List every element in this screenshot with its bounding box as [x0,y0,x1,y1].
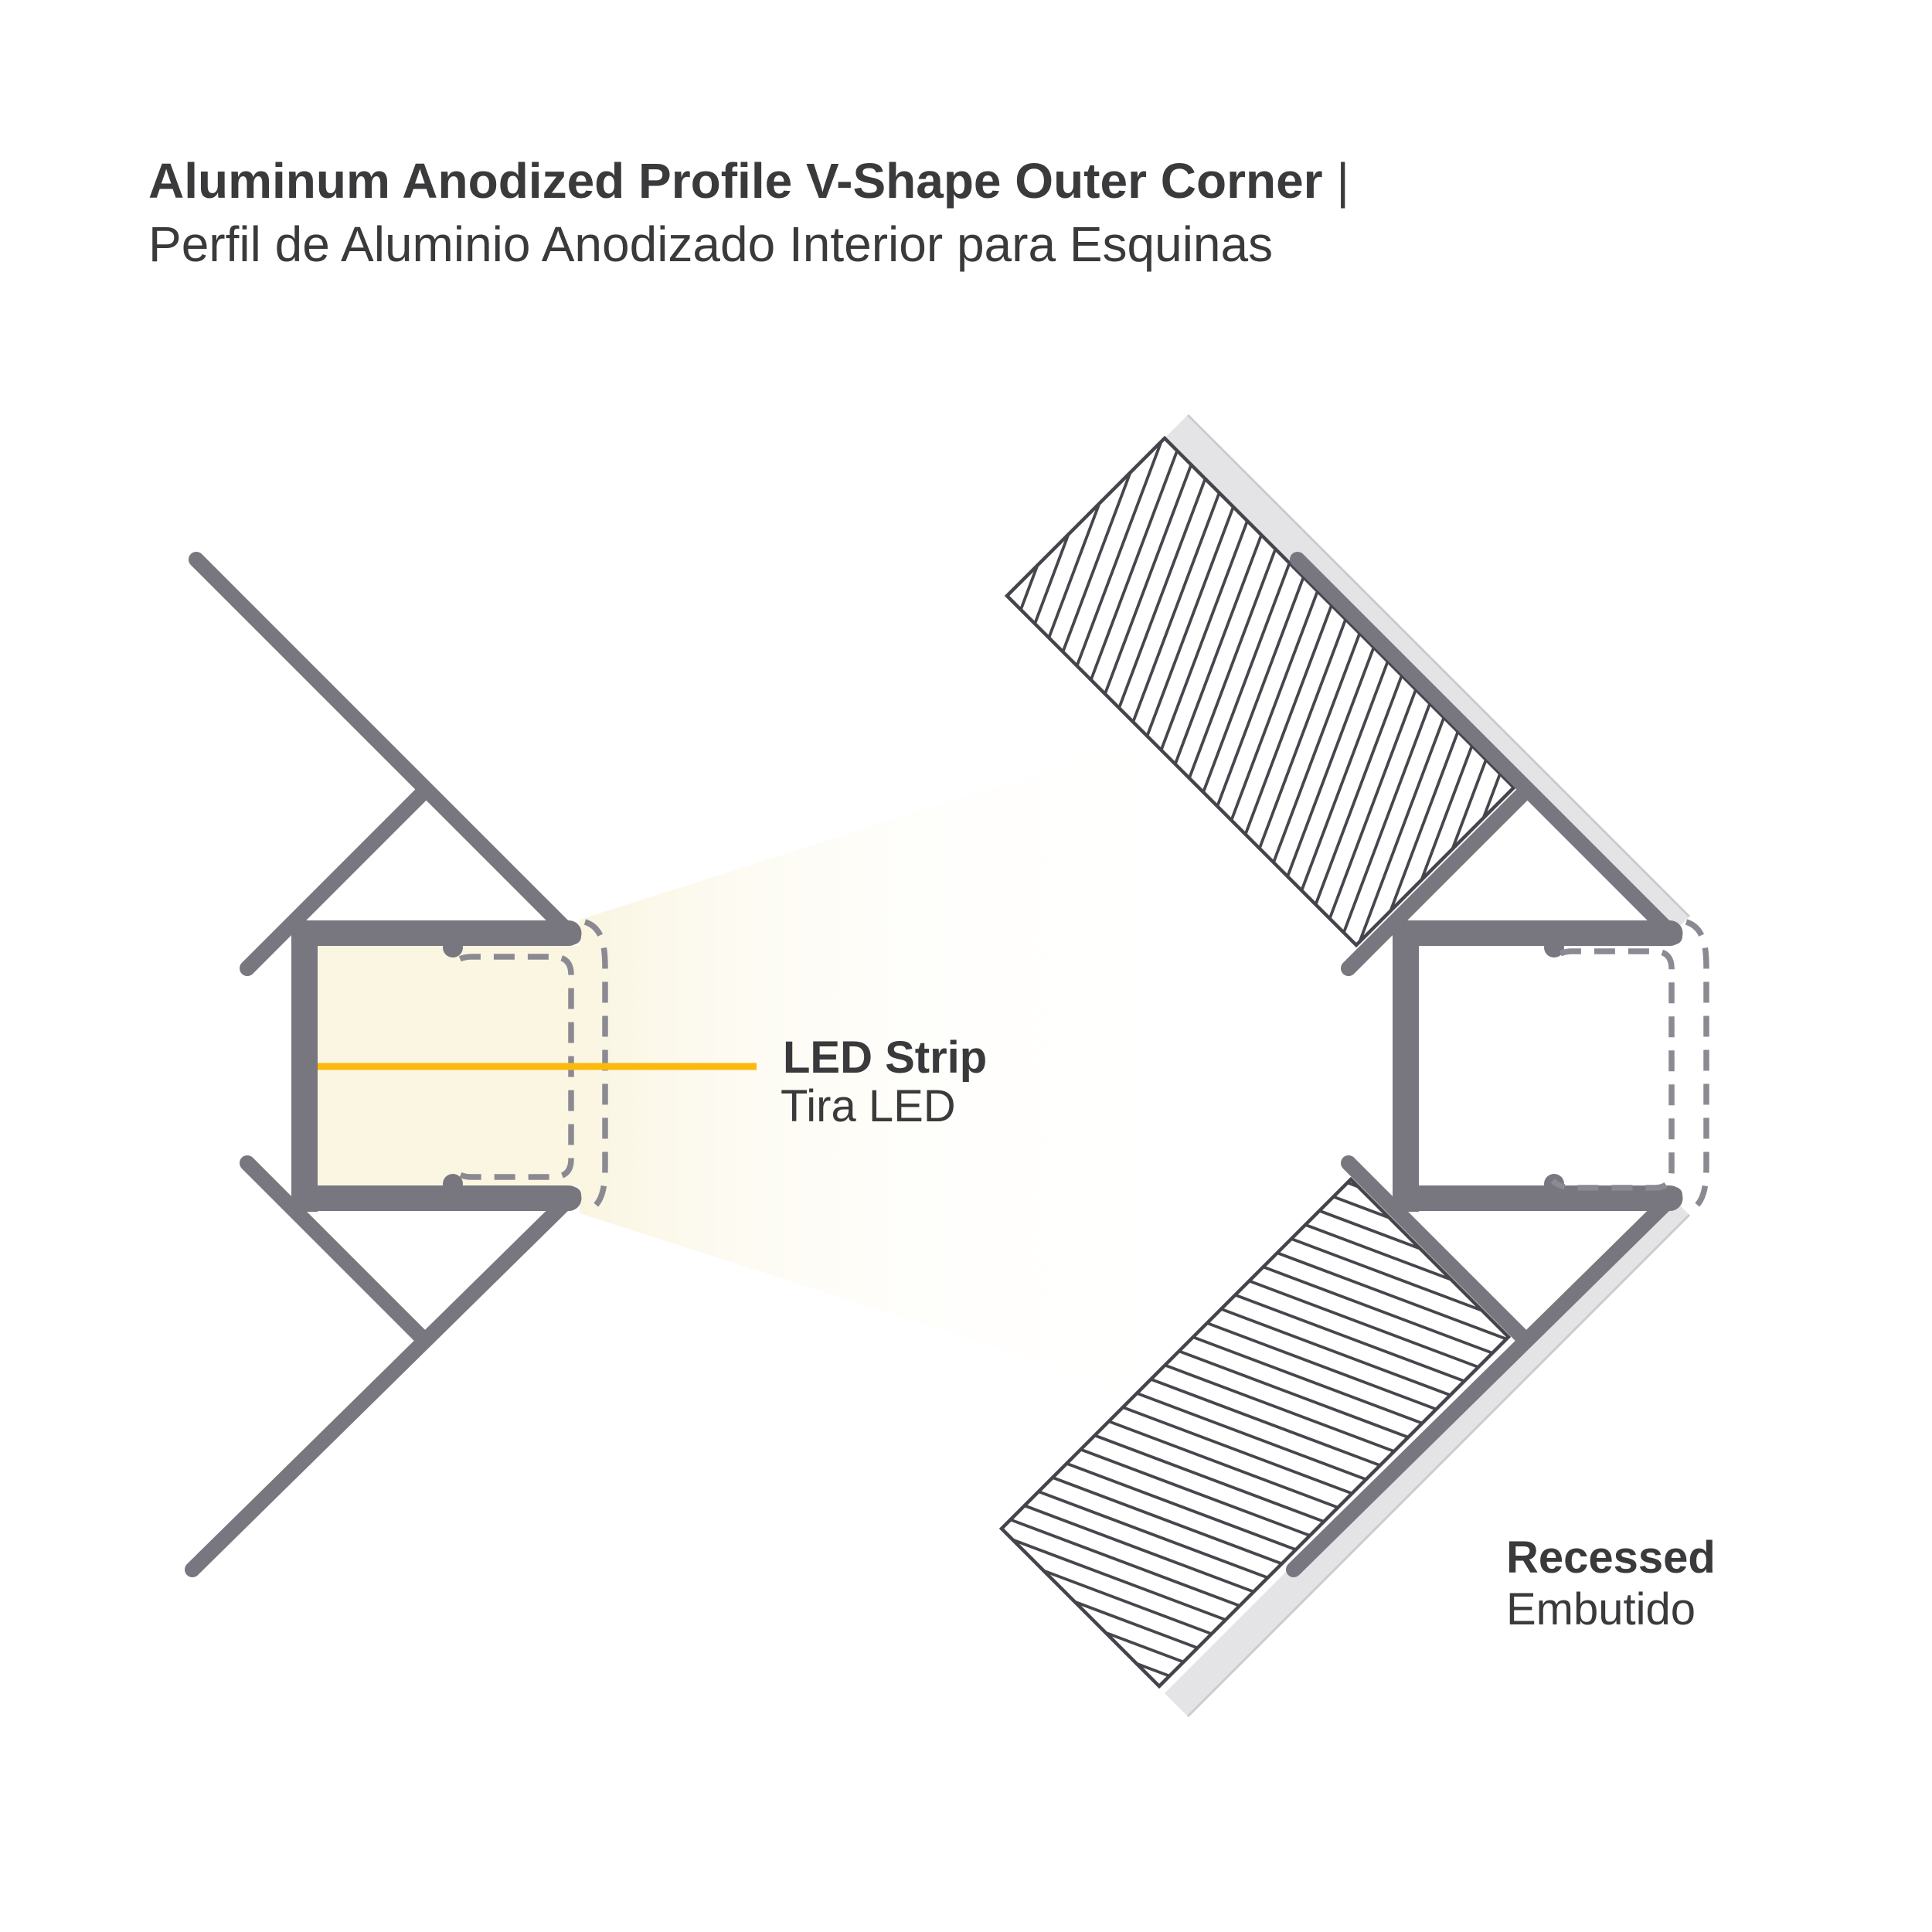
svg-text:Tira LED: Tira LED [781,1081,956,1131]
svg-text:Perfil de Aluminio Anodizado I: Perfil de Aluminio Anodizado Interior pa… [148,216,1273,272]
svg-text:Aluminum Anodized Profile V-Sh: Aluminum Anodized Profile V-Shape Outer … [148,153,1349,209]
svg-text:LED Strip: LED Strip [783,1032,987,1083]
svg-text:Embutido: Embutido [1506,1584,1696,1634]
svg-text:Recessed: Recessed [1506,1532,1716,1583]
